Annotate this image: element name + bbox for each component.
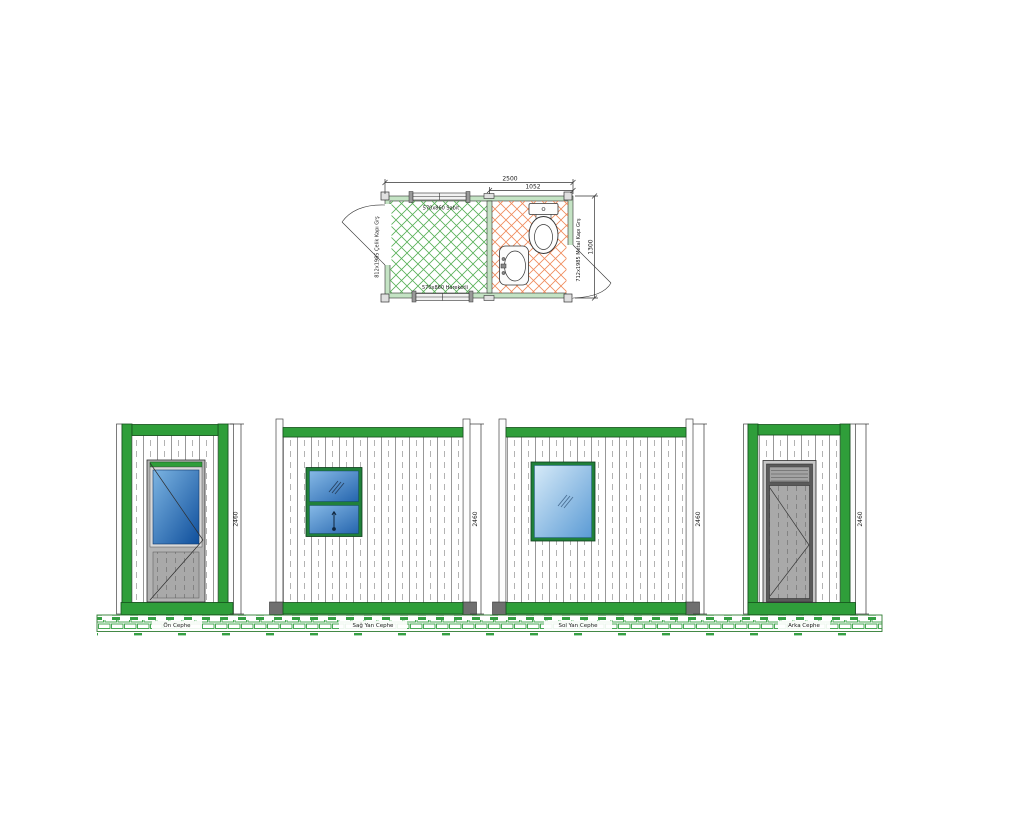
wc-metal-door xyxy=(763,461,816,603)
handle-knob xyxy=(333,528,336,531)
window-pane xyxy=(535,466,592,538)
base-end-cap xyxy=(493,602,507,615)
base-end-cap xyxy=(463,602,477,615)
plan-divider-cap-bottom xyxy=(484,296,494,301)
base-end-cap xyxy=(270,602,284,615)
top-beam xyxy=(758,425,840,436)
toilet-icon xyxy=(529,204,558,254)
dim-text-2460: 2460 xyxy=(857,511,864,526)
door-bottom-panel xyxy=(153,552,199,598)
door-leaf xyxy=(770,486,810,599)
plan-label-door-left: 812x1985 Çelik Kapı Grş xyxy=(375,216,381,278)
corner-trim xyxy=(117,424,123,614)
two-pane-window xyxy=(306,468,362,537)
toilet-bowl-inner xyxy=(535,225,553,250)
corner-post xyxy=(840,424,850,614)
sink-tap xyxy=(502,257,505,260)
plan-corner-post xyxy=(564,294,572,302)
corner-trim xyxy=(499,419,506,614)
dim-text-2460: 2460 xyxy=(695,511,702,526)
corner-post xyxy=(122,424,132,614)
elevation-label-front: Ön Cephe xyxy=(163,622,191,629)
window-end-cap xyxy=(469,291,473,302)
dim-text-1052: 1052 xyxy=(525,184,540,191)
window-end-cap xyxy=(466,192,470,203)
plan-corner-post xyxy=(564,192,572,200)
plan-label-window-bottom: 570x860 Hareketli xyxy=(422,285,468,291)
toilet-flush-button xyxy=(542,208,545,211)
elevation-right-side: 2460 xyxy=(270,419,485,615)
plan-divider-wall xyxy=(487,201,492,293)
bottom-beam xyxy=(121,603,233,615)
plan-dim-wc: 1052 xyxy=(487,184,576,195)
dim-text-2500: 2500 xyxy=(502,176,517,183)
corner-post xyxy=(218,424,228,614)
door-glass xyxy=(153,470,199,544)
elevation-label-back: Arka Cephe xyxy=(788,623,820,629)
ground-ticks-top xyxy=(98,616,882,621)
ground-strip: Ön Cephe Sağ Yan Cephe Sol Yan Cephe Ark… xyxy=(97,615,882,636)
ground-ticks-bottom xyxy=(97,633,882,636)
corner-trim xyxy=(850,424,856,614)
door-header xyxy=(150,462,202,467)
plan-door-opening-left xyxy=(384,204,392,265)
corner-trim xyxy=(276,419,283,614)
dim-back-height: 2460 xyxy=(856,424,870,614)
floor-plan: 2500 1052 1300 570x860 Sabit 570x860 Har… xyxy=(342,176,611,303)
plan-door-opening-right xyxy=(567,245,575,298)
sink-icon xyxy=(500,246,529,285)
elevation-label-left: Sol Yan Cephe xyxy=(559,623,599,629)
ground-bricks xyxy=(98,620,882,631)
fixed-window xyxy=(531,462,595,541)
plan-label-door-right: 712x1985 Metal Kapı Grş xyxy=(576,218,582,282)
elevation-front: 2460 xyxy=(117,424,245,615)
elevation-label-right: Sağ Yan Cephe xyxy=(353,622,395,629)
plan-label-window-top: 570x860 Sabit xyxy=(423,206,459,212)
bottom-beam xyxy=(748,603,856,615)
plan-corner-post xyxy=(381,294,389,302)
top-beam xyxy=(132,425,218,436)
sink-basin xyxy=(505,251,526,281)
door-swing-arc xyxy=(573,283,611,298)
entrance-door xyxy=(147,460,205,602)
bottom-beam xyxy=(283,603,463,615)
dim-left-height: 2460 xyxy=(693,424,707,614)
plan-divider-cap-top xyxy=(484,194,494,199)
corner-trim xyxy=(686,419,693,614)
sink-spout xyxy=(501,264,506,268)
top-beam xyxy=(506,428,686,438)
plan-dim-length: 2500 xyxy=(383,176,576,195)
corner-trim xyxy=(463,419,470,614)
window-end-cap xyxy=(412,291,416,302)
elevation-left-side: 2460 xyxy=(493,419,708,615)
corner-post xyxy=(748,424,758,614)
container-cabin-drawing: 2500 1052 1300 570x860 Sabit 570x860 Har… xyxy=(0,0,1030,824)
sink-tap xyxy=(502,271,505,274)
dim-text-2460: 2460 xyxy=(472,511,479,526)
dim-text-1300: 1300 xyxy=(588,239,595,254)
plan-room-main-floor xyxy=(390,201,487,293)
dim-text-2460: 2460 xyxy=(233,511,240,526)
elevation-back: 2460 xyxy=(744,424,870,615)
corner-trim xyxy=(744,424,749,614)
base-end-cap xyxy=(686,602,700,615)
door-transom-louver xyxy=(770,467,810,482)
top-beam xyxy=(283,428,463,438)
drawing-canvas: 2500 1052 1300 570x860 Sabit 570x860 Har… xyxy=(0,0,1030,824)
bottom-beam xyxy=(506,603,686,615)
window-end-cap xyxy=(409,192,413,203)
dim-right-height: 2460 xyxy=(470,424,484,614)
